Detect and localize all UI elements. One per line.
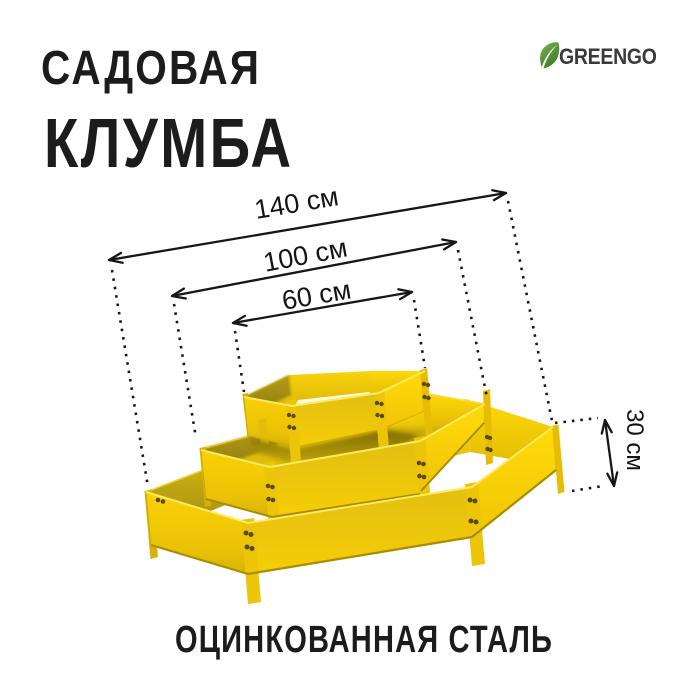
svg-text:60 см: 60 см <box>280 274 354 315</box>
svg-text:30 см: 30 см <box>621 409 648 471</box>
svg-text:140 см: 140 см <box>252 181 340 225</box>
